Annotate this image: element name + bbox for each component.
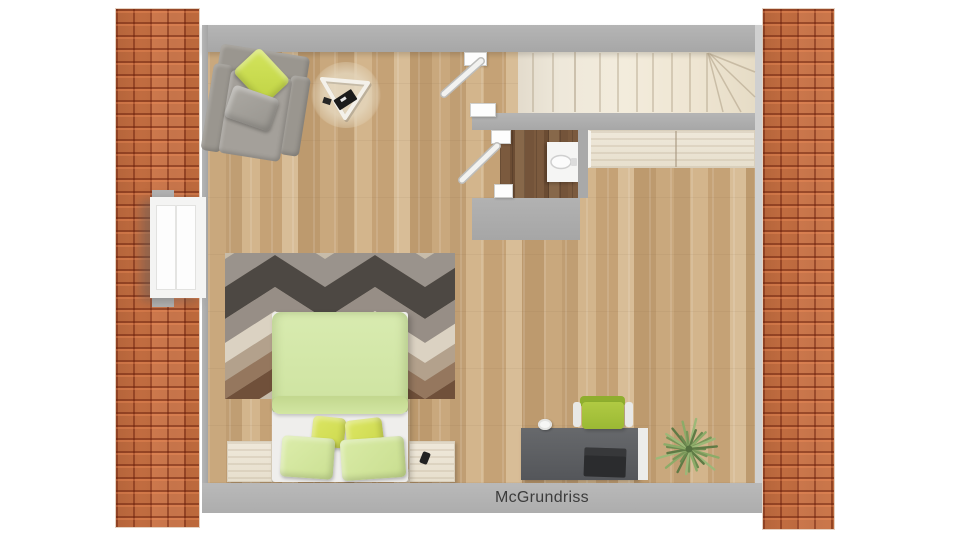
armchair xyxy=(200,43,316,169)
round-rug xyxy=(311,62,381,128)
wall-top xyxy=(202,25,762,52)
bathroom-sink xyxy=(547,142,578,182)
door-frame-hall xyxy=(470,103,496,117)
bed-duvet-fold xyxy=(272,396,408,414)
potted-plant xyxy=(651,413,727,485)
desk-chair-arm-right xyxy=(625,402,633,427)
door-frame-bath-top xyxy=(491,130,511,144)
nightstand-left xyxy=(227,441,272,482)
desk-chair-arm-left xyxy=(573,402,581,427)
desk-chair-seat xyxy=(582,402,624,429)
window-mullion xyxy=(175,205,177,290)
bathroom-wall-right xyxy=(578,130,588,198)
kitchenette-counter xyxy=(588,130,755,168)
wall-below-stairs xyxy=(472,113,755,130)
bed-pillow-large-right xyxy=(340,436,407,481)
laptop xyxy=(584,447,627,477)
wall-right xyxy=(755,25,762,513)
counter-divider xyxy=(675,131,677,167)
bed-pillow-large-left xyxy=(280,435,336,480)
closet-block xyxy=(472,198,580,240)
door-frame-top xyxy=(464,52,487,66)
cup xyxy=(538,419,552,430)
door-frame-bath-bottom xyxy=(494,184,513,198)
nightstand-right xyxy=(409,441,455,482)
roof-tiles-right xyxy=(762,8,835,530)
floorplan-canvas: McGrundriss xyxy=(0,0,960,540)
window xyxy=(150,197,206,298)
desk-side-panel xyxy=(638,428,648,480)
staircase xyxy=(518,52,755,113)
plan-caption: McGrundriss xyxy=(442,487,642,509)
